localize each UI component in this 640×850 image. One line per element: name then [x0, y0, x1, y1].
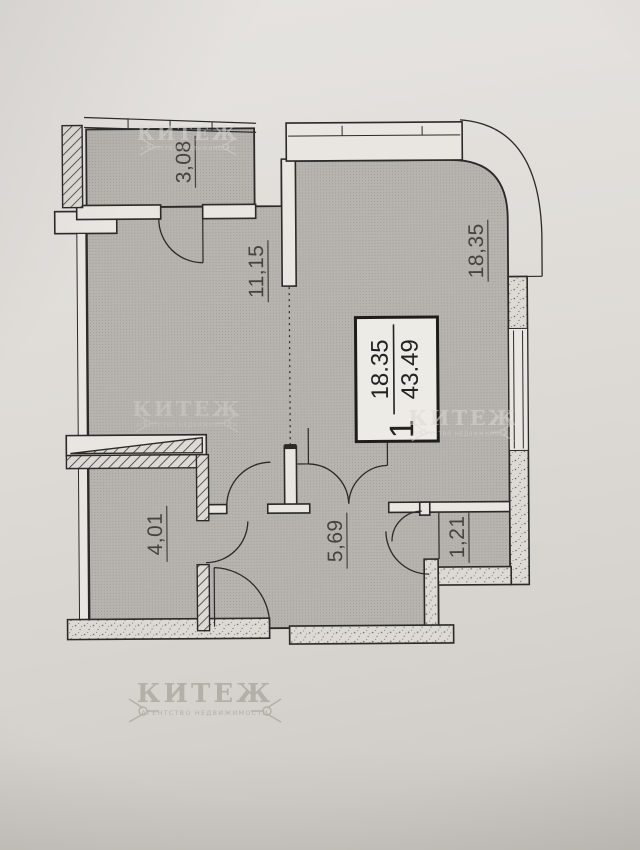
stamp-total-area: 43.49: [397, 339, 424, 399]
wall-bathroom-top-hatched: [66, 455, 206, 469]
wall-divider-lower: [284, 446, 296, 506]
svg-text:КИТЕЖ: КИТЕЖ: [408, 405, 517, 430]
wall-closet-top: [389, 502, 511, 513]
wall-hall-right: [424, 559, 438, 629]
svg-text:КИТЕЖ: КИТЕЖ: [137, 679, 274, 709]
floor-plan-drawing: 1 18.35 43.49 3,08 11,15 18,35: [0, 0, 640, 850]
stamp-living-area: 18.35: [367, 339, 394, 399]
room-label-closet: 1,21: [446, 511, 469, 563]
wall-window-band-top: [286, 122, 462, 161]
wall-bottom-corridor: [290, 625, 454, 644]
wall-balcony-left-hatched: [62, 126, 83, 208]
wall-tfoot: [268, 504, 310, 513]
watermark: КИТЕЖ АГЕНТСТВО НЕДВИЖИМОСТИ: [132, 396, 241, 432]
wall-bathroom-right-upper: [196, 455, 208, 521]
wall-stub-mid: [207, 505, 227, 514]
svg-text:1,21: 1,21: [446, 515, 469, 558]
wall-closet-bottom: [438, 567, 511, 586]
svg-text:АГЕНТСТВО НЕДВИЖИМОСТИ: АГЕНТСТВО НЕДВИЖИМОСТИ: [141, 709, 268, 717]
wall-bottom-left: [68, 618, 270, 639]
svg-text:11,15: 11,15: [245, 244, 268, 298]
svg-text:КИТЕЖ: КИТЕЖ: [132, 396, 241, 421]
plan-group: 1 18.35 43.49 3,08 11,15 18,35: [54, 114, 545, 645]
watermark: КИТЕЖ АГЕНТСТВО НЕДВИЖИМОСТИ: [137, 122, 239, 155]
room-label-living-main: 18,35: [465, 220, 488, 282]
wall-bathroom-right-lower: [197, 565, 209, 631]
svg-text:4,01: 4,01: [144, 512, 167, 555]
photographed-floor-plan: 1 18.35 43.49 3,08 11,15 18,35: [0, 0, 640, 850]
svg-text:18,35: 18,35: [465, 223, 488, 278]
wall-balcony-sill-right: [203, 204, 256, 218]
watermark: КИТЕЖ АГЕНТСТВО НЕДВИЖИМОСТИ: [408, 405, 517, 441]
watermark: КИТЕЖ АГЕНТСТВО НЕДВИЖИМОСТИ: [129, 679, 281, 722]
wall-balcony-sill-left: [77, 205, 161, 220]
svg-text:КИТЕЖ: КИТЕЖ: [137, 122, 239, 145]
wall-closet-notch: [420, 502, 430, 515]
room-label-hallway: 5,69: [324, 513, 347, 569]
room-label-living-left: 11,15: [245, 240, 268, 302]
wall-divider-upper: [281, 159, 296, 286]
room-label-bathroom: 4,01: [144, 506, 167, 562]
svg-text:5,69: 5,69: [324, 519, 347, 562]
